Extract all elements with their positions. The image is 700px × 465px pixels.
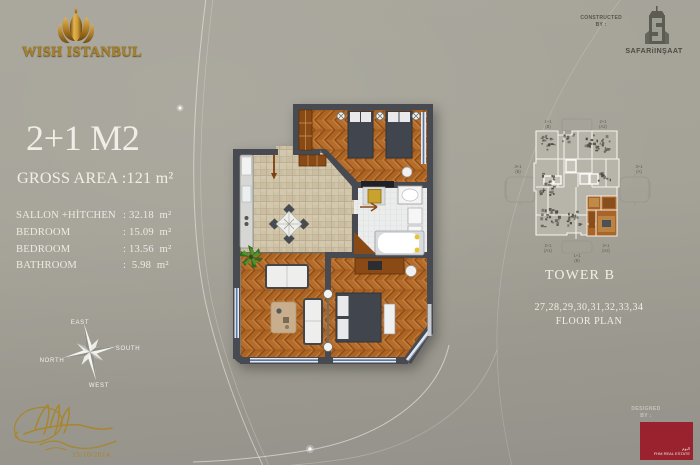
svg-text:SAFARiINŞAAT: SAFARiINŞAAT <box>625 46 683 55</box>
svg-text:(B): (B) <box>574 258 580 263</box>
svg-text:(A1): (A1) <box>544 248 553 253</box>
svg-text:(B): (B) <box>515 169 521 174</box>
svg-text:(B): (B) <box>545 124 551 129</box>
svg-text:15/10/2014: 15/10/2014 <box>72 450 110 459</box>
svg-text:EAST: EAST <box>71 320 89 326</box>
svg-text:(A2): (A2) <box>602 248 611 253</box>
svg-text:WEST: WEST <box>89 383 109 389</box>
svg-text:(A2): (A2) <box>599 124 608 129</box>
svg-text:SOUTH: SOUTH <box>116 346 141 352</box>
svg-text:(A): (A) <box>636 169 642 174</box>
svg-text:NORTH: NORTH <box>40 358 65 364</box>
